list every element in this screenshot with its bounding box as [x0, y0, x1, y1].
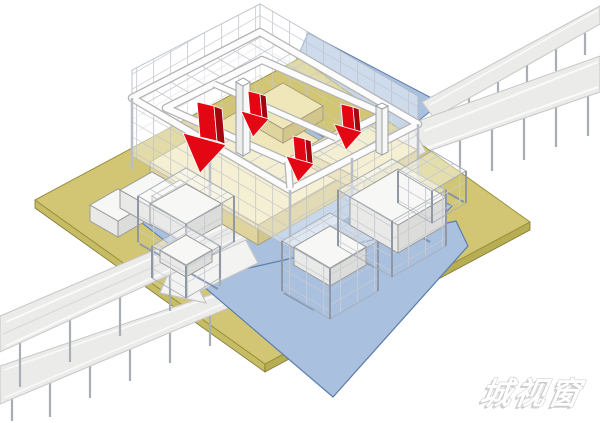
watermark-text: 城视窗 — [478, 376, 588, 412]
watermark: 城视窗 城视窗 — [475, 376, 587, 414]
axonometric-diagram: 城视窗 城视窗 — [0, 0, 600, 423]
diagram-canvas: 城视窗 城视窗 — [0, 0, 600, 423]
